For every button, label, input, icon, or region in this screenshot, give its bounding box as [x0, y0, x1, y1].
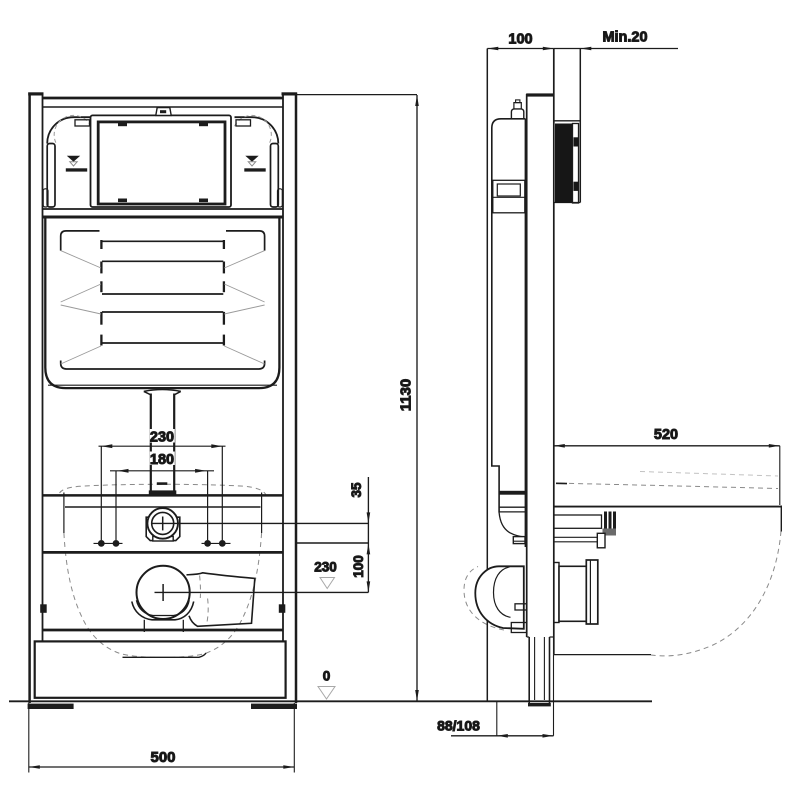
- svg-text:88/108: 88/108: [437, 718, 480, 734]
- svg-text:0: 0: [323, 669, 331, 684]
- svg-text:100: 100: [508, 32, 532, 48]
- svg-text:230: 230: [150, 430, 174, 446]
- svg-text:100: 100: [351, 555, 366, 578]
- svg-text:500: 500: [150, 749, 175, 766]
- svg-text:Min.20: Min.20: [602, 30, 647, 46]
- svg-text:230: 230: [314, 560, 337, 575]
- svg-text:35: 35: [349, 482, 364, 498]
- svg-text:180: 180: [150, 452, 174, 468]
- svg-text:520: 520: [654, 427, 678, 443]
- svg-text:1130: 1130: [398, 379, 415, 412]
